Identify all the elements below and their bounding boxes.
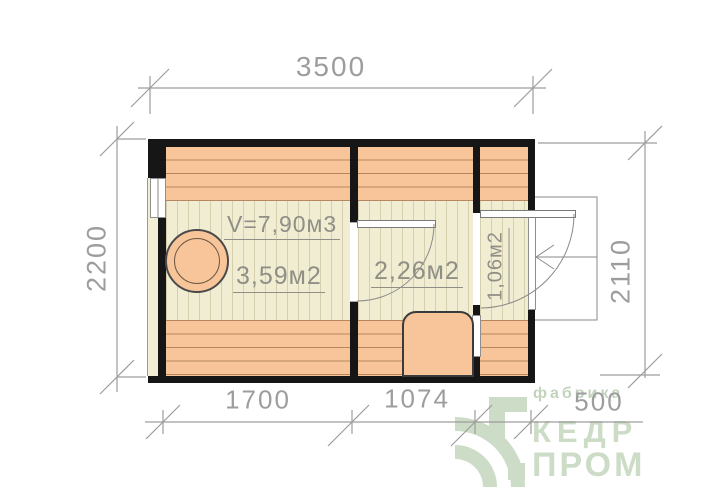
top-wall (150, 139, 535, 147)
left-wall-lower (158, 218, 166, 376)
dim-ext-left (117, 139, 146, 377)
dimension-top-label: 3500 (296, 51, 366, 83)
door-opening-hall (473, 213, 480, 305)
bench (402, 311, 474, 377)
sauna-area-label: 3,59м2 (233, 262, 325, 293)
right-wall-lower (528, 310, 535, 383)
logo-line2: ПРОМ (532, 448, 645, 482)
floor-plan-canvas: фабрика КЕДР ПРОМ (0, 0, 711, 502)
partition2-middle (473, 305, 480, 315)
sauna-bottom-plank-band (166, 320, 350, 377)
dim-tick-bottom-2 (328, 405, 369, 446)
logo-mark-arc-outer (455, 417, 525, 487)
entrance-arrow (536, 245, 597, 269)
right-wall-upper (528, 139, 535, 213)
door-leaf-hall (480, 210, 576, 218)
washroom-area-label: 2,26м2 (371, 257, 463, 288)
dimension-left-label: 2200 (82, 224, 113, 292)
dim-tick-bottom-1 (146, 405, 180, 439)
partition2-lower (473, 357, 480, 376)
dim-tick-bottom-3 (451, 405, 492, 446)
hall-bottom-plank-band (480, 320, 528, 377)
dimension-right-label: 2110 (606, 238, 637, 304)
door-opening-sauna (350, 222, 358, 302)
dim-ext-bottom (163, 410, 531, 434)
exterior-door-opening (528, 213, 536, 310)
stove-inner-ring (174, 238, 220, 284)
logo-mark-arc-inner (455, 445, 497, 487)
sauna-volume-label: V=7,90м3 (224, 211, 340, 240)
logo-mark-square (508, 463, 525, 480)
sauna-top-plank-band (166, 147, 350, 201)
bottom-wall (148, 376, 535, 383)
washroom-top-plank-band (358, 147, 473, 201)
hall-area-label: 1,06м2 (485, 228, 510, 304)
left-wall-upper (148, 139, 166, 178)
door-leaf-sauna (357, 220, 436, 228)
dim-ext-right (538, 143, 660, 375)
hall-top-plank-band (480, 147, 528, 201)
window-left (150, 178, 166, 218)
logo-line1: КЕДР (532, 416, 638, 447)
partition1-lower (350, 300, 358, 376)
dimension-hall-width-label: 500 (574, 387, 623, 418)
partition2-upper (473, 147, 480, 213)
dimension-sauna-width-label: 1700 (225, 385, 291, 416)
partition1-upper (350, 147, 358, 222)
dimension-washroom-width-label: 1074 (384, 384, 450, 415)
logo-mark-bar (489, 397, 527, 442)
